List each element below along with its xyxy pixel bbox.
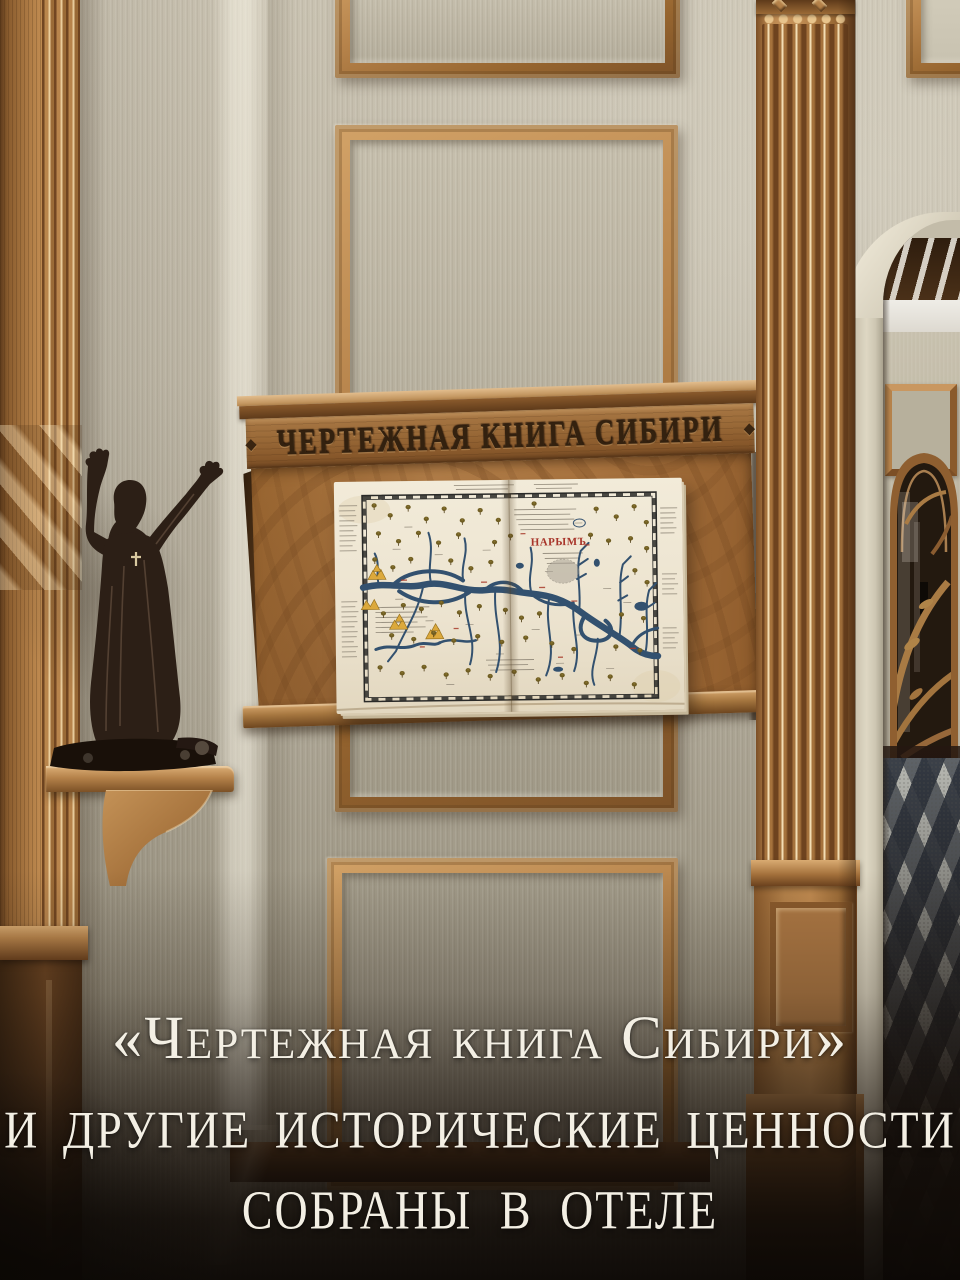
wall-frame-top-right	[906, 0, 960, 78]
map-book: НАРЫМЪ	[334, 478, 685, 714]
pilaster-flute-tips	[762, 12, 848, 26]
right-margin-notes	[660, 508, 679, 648]
caption-line-3: собраны в отеле	[0, 1178, 960, 1242]
wall-frame-top	[335, 0, 680, 78]
left-margin-notes	[339, 506, 359, 657]
diamond-ornament-right: ◆	[743, 419, 755, 438]
caption-line-2: и другие исторические ценности	[0, 1099, 960, 1160]
coffered-ceiling	[883, 238, 960, 300]
map-label-narym: НАРЫМЪ	[531, 536, 587, 549]
bronze-statue	[28, 436, 238, 786]
wall-frame-top-panel	[350, 0, 665, 63]
pilaster-flutes	[762, 24, 848, 862]
map-lectern: ◆ ЧЕРТЕЖНАЯ КНИГА СИБИРИ ◆	[241, 380, 767, 734]
photo-scene: ◆ ЧЕРТЕЖНАЯ КНИГА СИБИРИ ◆	[0, 0, 960, 1280]
arched-mirror	[886, 432, 960, 758]
room-ceiling	[883, 300, 960, 332]
settlement-hatch	[547, 559, 579, 583]
caption-line-1: «Чертежная книга Сибири»	[0, 1004, 960, 1074]
diamond-ornament-left: ◆	[245, 434, 257, 453]
wall-frame-top-right-panel	[921, 0, 960, 63]
siberia-map: НАРЫМЪ	[334, 478, 685, 714]
